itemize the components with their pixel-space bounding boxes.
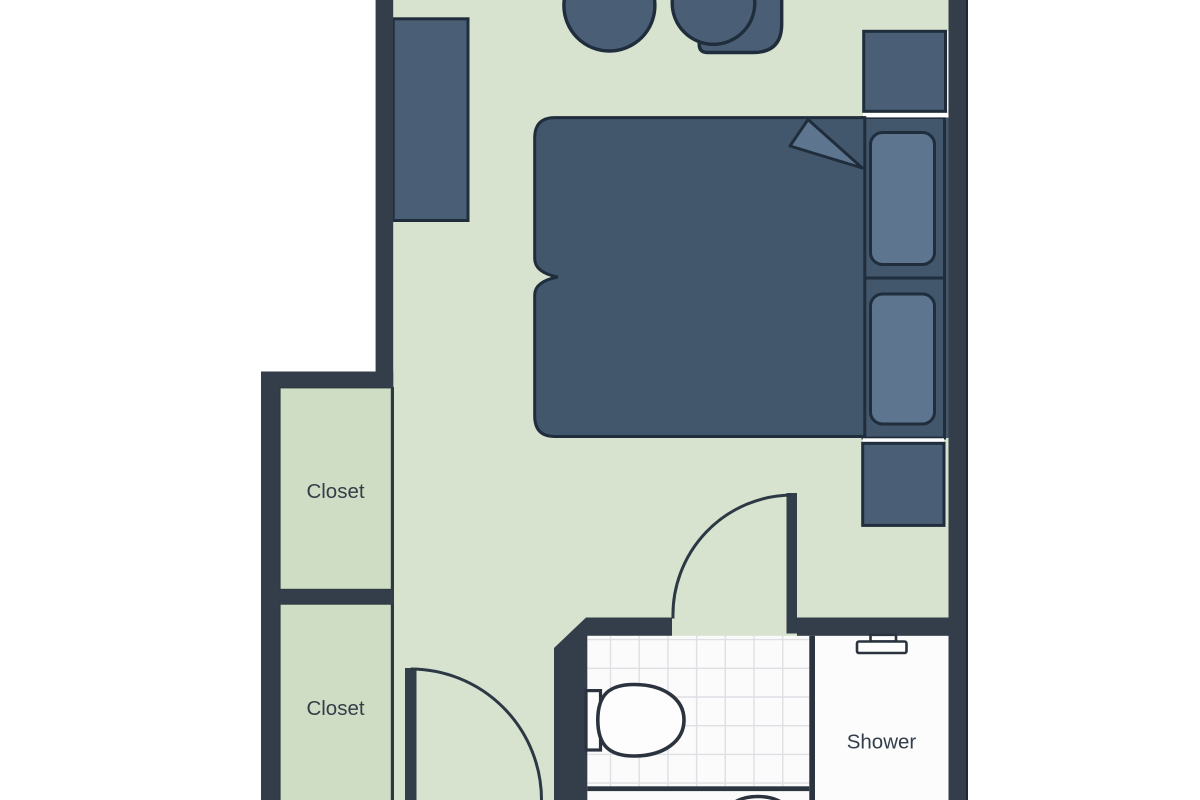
svg-text:Shower: Shower [847, 731, 917, 754]
svg-text:Closet: Closet [306, 697, 364, 720]
svg-text:Closet: Closet [306, 480, 364, 503]
